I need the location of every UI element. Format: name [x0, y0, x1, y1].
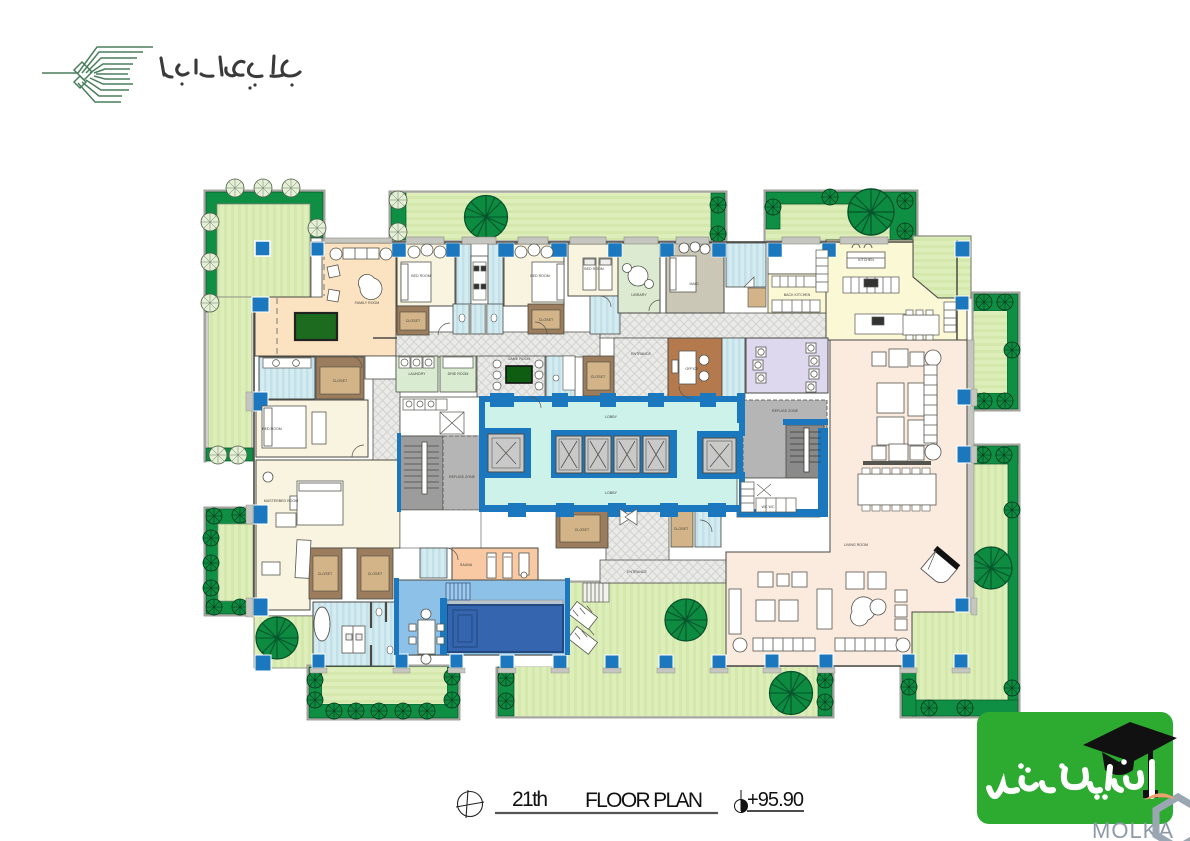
- svg-text:REFUGE ZONE: REFUGE ZONE: [449, 475, 476, 479]
- svg-text:SAUNA: SAUNA: [460, 563, 473, 567]
- svg-text:CLOSET: CLOSET: [539, 318, 554, 322]
- svg-text:ENTRANCE: ENTRANCE: [627, 570, 647, 574]
- svg-text:MASTERBED ROOM: MASTERBED ROOM: [264, 499, 299, 503]
- svg-text:MAID: MAID: [690, 282, 699, 286]
- svg-text:BACK KITCHEN: BACK KITCHEN: [784, 293, 811, 297]
- svg-text:CLOSET: CLOSET: [368, 572, 383, 576]
- svg-text:+95.90: +95.90: [747, 789, 804, 811]
- svg-text:CLOSET: CLOSET: [406, 319, 421, 323]
- svg-text:BED ROOM: BED ROOM: [411, 274, 431, 278]
- svg-text:GAME ROOM: GAME ROOM: [508, 357, 531, 361]
- svg-text:CLOSET: CLOSET: [591, 375, 606, 379]
- svg-text:LAUNDRY: LAUNDRY: [408, 372, 426, 376]
- svg-text:CLOSET: CLOSET: [674, 527, 689, 531]
- svg-text:LOBBY: LOBBY: [605, 415, 618, 419]
- svg-text:LOBBY: LOBBY: [605, 491, 618, 495]
- svg-text:BED ROOM: BED ROOM: [530, 274, 550, 278]
- svg-text:CLOSET: CLOSET: [575, 528, 590, 532]
- svg-text:LIVING ROOM: LIVING ROOM: [844, 543, 868, 547]
- svg-text:BED ROOM: BED ROOM: [262, 427, 282, 431]
- svg-text:BED ROOM: BED ROOM: [584, 267, 604, 271]
- svg-text:DRIE ROOM: DRIE ROOM: [448, 372, 469, 376]
- svg-text:WC WC: WC WC: [762, 505, 775, 509]
- svg-text:LIBRARY: LIBRARY: [631, 293, 647, 297]
- svg-text:REFUGE ZONE: REFUGE ZONE: [772, 409, 799, 413]
- svg-text:21th: 21th: [512, 788, 548, 811]
- svg-text:ENTRANCE: ENTRANCE: [631, 352, 651, 356]
- svg-text:CLOSET: CLOSET: [318, 572, 333, 576]
- svg-text:OFFICE: OFFICE: [685, 367, 699, 371]
- svg-text:FLOOR PLAN: FLOOR PLAN: [585, 789, 703, 812]
- svg-text:KITCHEN: KITCHEN: [858, 258, 874, 262]
- svg-text:FAMILY ROOM: FAMILY ROOM: [355, 301, 380, 305]
- svg-text:CLOSET: CLOSET: [333, 379, 348, 383]
